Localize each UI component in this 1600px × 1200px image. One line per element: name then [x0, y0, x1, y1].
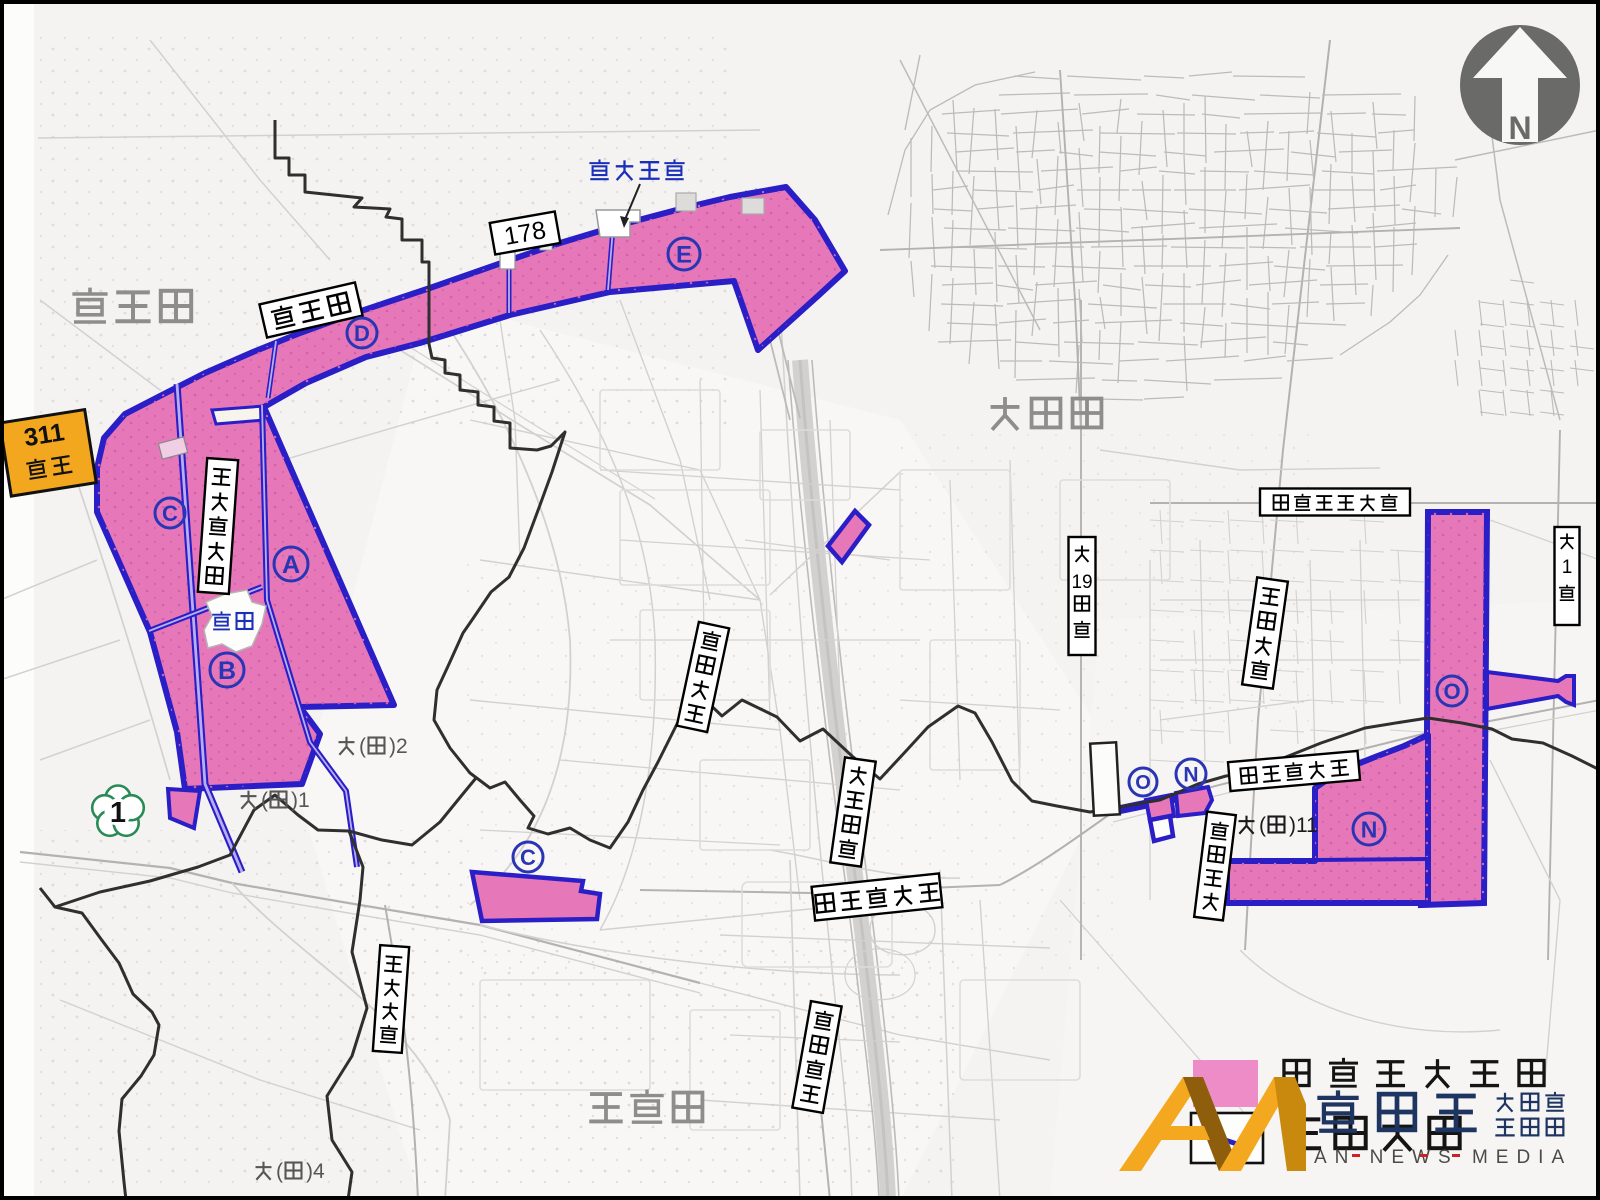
svg-text:N: N	[1361, 816, 1378, 842]
svg-text:)1: )1	[291, 789, 310, 812]
svg-text:N: N	[1183, 764, 1198, 787]
svg-text:19: 19	[1071, 572, 1092, 593]
svg-text:(: (	[261, 789, 268, 812]
svg-text:C: C	[162, 501, 178, 526]
svg-text:1: 1	[110, 797, 126, 829]
svg-text:AN NEWS MEDIA: AN NEWS MEDIA	[1314, 1147, 1572, 1168]
svg-text:A: A	[282, 551, 300, 579]
svg-text:(: (	[276, 1160, 283, 1183]
svg-text:D: D	[354, 321, 370, 346]
svg-text:O: O	[1443, 679, 1460, 704]
svg-text:E: E	[676, 242, 692, 269]
svg-text:B: B	[218, 657, 236, 685]
svg-text:O: O	[1135, 772, 1151, 794]
svg-text:(: (	[1259, 814, 1266, 837]
svg-text:)2: )2	[389, 735, 408, 758]
svg-text:N: N	[1508, 110, 1531, 146]
svg-text:)4: )4	[306, 1160, 325, 1183]
svg-text:)11: )11	[1289, 814, 1318, 837]
svg-text:(: (	[359, 735, 366, 758]
svg-text:1: 1	[1562, 557, 1573, 578]
svg-text:C: C	[520, 845, 536, 870]
